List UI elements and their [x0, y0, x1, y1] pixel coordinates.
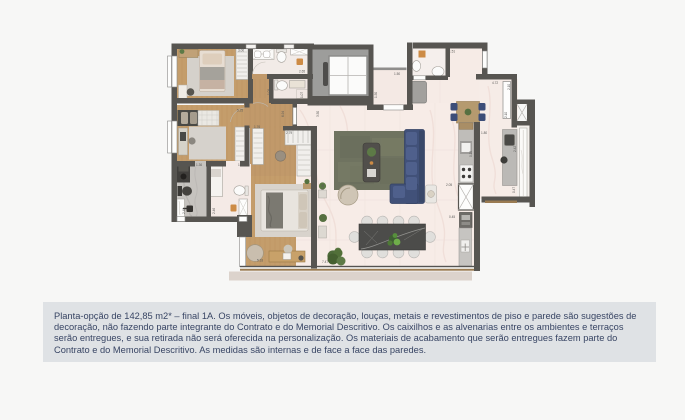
svg-text:5.25: 5.25 [237, 109, 243, 113]
svg-text:6.94: 6.94 [281, 111, 285, 117]
svg-text:1.65: 1.65 [276, 98, 282, 102]
svg-text:0.25: 0.25 [469, 151, 473, 157]
svg-text:3.50: 3.50 [316, 111, 320, 117]
svg-text:1.51: 1.51 [449, 50, 455, 54]
svg-text:2.42: 2.42 [513, 146, 517, 152]
svg-text:4.32: 4.32 [188, 99, 194, 103]
svg-text:1.09: 1.09 [267, 89, 271, 95]
svg-text:2.10: 2.10 [504, 112, 508, 118]
svg-text:0.45: 0.45 [449, 215, 455, 219]
svg-text:1.76: 1.76 [254, 125, 260, 129]
svg-text:2.46: 2.46 [212, 208, 216, 214]
svg-text:1.50: 1.50 [394, 72, 400, 76]
svg-text:2.79: 2.79 [286, 131, 292, 135]
svg-text:1.80: 1.80 [481, 131, 487, 135]
svg-text:1.76: 1.76 [238, 163, 244, 167]
svg-text:1.36: 1.36 [196, 163, 202, 167]
svg-text:2.65: 2.65 [299, 70, 305, 74]
svg-text:2.05: 2.05 [446, 183, 452, 187]
svg-text:1.50: 1.50 [374, 92, 378, 98]
svg-text:7.47: 7.47 [322, 260, 328, 264]
svg-text:2.10: 2.10 [507, 84, 511, 90]
svg-text:2.45: 2.45 [182, 208, 186, 214]
svg-text:5.18: 5.18 [257, 259, 263, 263]
svg-text:0.47: 0.47 [512, 187, 516, 193]
svg-text:1.07: 1.07 [300, 92, 304, 98]
svg-text:4.72: 4.72 [492, 81, 498, 85]
svg-text:5.30: 5.30 [321, 184, 325, 190]
svg-text:3.00: 3.00 [238, 49, 244, 53]
